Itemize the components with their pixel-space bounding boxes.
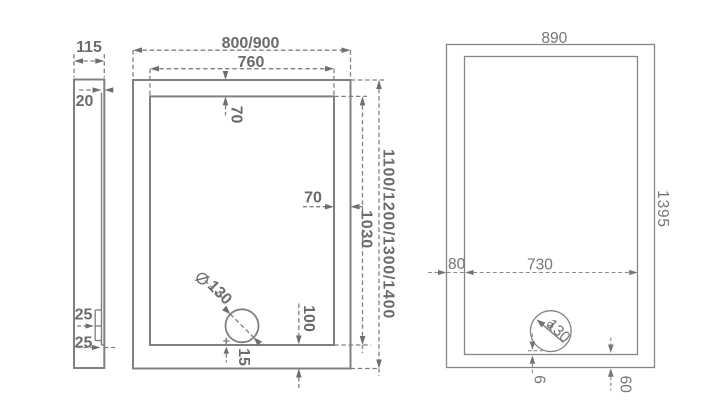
svg-text:60: 60 [616,376,633,394]
svg-text:800/900: 800/900 [222,35,280,52]
svg-text:70: 70 [228,106,245,124]
svg-text:25: 25 [75,335,93,352]
svg-text:730: 730 [527,257,553,274]
svg-text:1100/1200/1300/1400: 1100/1200/1300/1400 [380,149,397,319]
svg-text:1030: 1030 [357,210,374,249]
svg-text:130: 130 [543,316,574,346]
svg-text:15: 15 [235,348,252,366]
svg-text:1395: 1395 [654,190,671,228]
svg-text:25: 25 [75,307,93,324]
svg-text:20: 20 [76,93,94,110]
svg-text:6: 6 [531,375,548,384]
svg-text:80: 80 [448,256,466,273]
svg-text:890: 890 [541,30,567,47]
svg-text:115: 115 [76,39,102,56]
svg-text:130: 130 [204,277,235,308]
svg-text:100: 100 [300,305,317,332]
svg-text:70: 70 [304,190,322,207]
